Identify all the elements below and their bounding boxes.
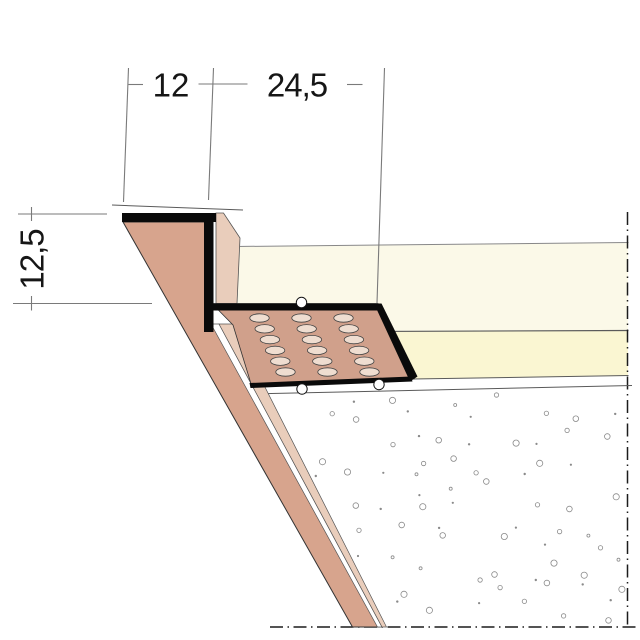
stipple-dot	[319, 459, 325, 465]
stipple-dot	[401, 591, 407, 597]
stipple-dot	[573, 416, 579, 422]
profile-top-bar	[122, 213, 216, 222]
stipple-dot	[420, 504, 426, 510]
perforation-hole	[271, 357, 290, 365]
dimension-label-top-flange: 12	[153, 67, 190, 104]
stipple-dot	[524, 473, 526, 475]
stipple-dot	[484, 479, 490, 485]
stipple-dot	[544, 580, 550, 586]
stipple-dot	[353, 417, 359, 423]
stipple-dot	[501, 533, 507, 539]
stipple-dot	[382, 472, 384, 474]
stipple-dot	[454, 404, 457, 407]
stipple-dot	[587, 534, 590, 537]
stipple-dot	[419, 567, 422, 570]
stipple-dot	[418, 435, 420, 437]
stipple-dot	[407, 410, 409, 412]
stipple-dot	[581, 572, 587, 578]
perforation-hole	[265, 346, 284, 354]
stipple-dot	[330, 412, 334, 416]
perforation-hole	[349, 346, 368, 354]
perforation-hole	[255, 325, 274, 333]
stipple-dot	[315, 475, 317, 477]
stipple-dot	[498, 585, 502, 589]
stipple-dot	[551, 560, 557, 566]
stipple-dot	[565, 428, 569, 432]
stipple-dot	[606, 618, 612, 624]
profile-cross-section-drawing: 12 24,5 12,5	[0, 0, 640, 640]
stipple-dot	[353, 401, 355, 403]
stipple-dot	[470, 416, 472, 418]
stipple-dot	[478, 578, 482, 582]
perforation-hole	[260, 335, 279, 343]
perforation-hole	[355, 357, 374, 365]
stipple-dot	[513, 440, 519, 446]
stipple-dot	[617, 558, 620, 561]
stipple-dot	[391, 442, 395, 446]
stipple-dot	[582, 583, 584, 585]
stipple-dot	[426, 607, 432, 613]
stipple-dot	[537, 460, 543, 466]
stipple-dot	[449, 487, 452, 490]
perforation-hole	[307, 346, 326, 354]
stipple-dot	[436, 437, 442, 443]
stipple-dot	[494, 393, 498, 397]
stipple-dot	[522, 599, 526, 603]
stipple-dot	[451, 456, 457, 462]
notch-front-edge	[296, 297, 306, 307]
stipple-dot	[605, 434, 611, 440]
dimension-label-perforated-flange: 24,5	[267, 67, 327, 104]
flange-front-edge	[212, 304, 379, 311]
stipple-dot	[619, 586, 625, 592]
stipple-dot	[391, 556, 394, 559]
notch-bottom-right	[374, 379, 384, 389]
stipple-dot	[468, 443, 470, 445]
stipple-dot	[515, 527, 517, 529]
stipple-dot	[415, 473, 418, 476]
profile-leg	[204, 213, 214, 332]
stipple-dot	[357, 528, 361, 532]
stipple-dot	[440, 533, 446, 539]
stipple-dot	[389, 397, 395, 403]
stipple-dot	[567, 506, 573, 512]
stipple-dot	[357, 555, 359, 557]
perforation-hole	[313, 357, 332, 365]
stipple-dot	[396, 600, 398, 602]
stipple-dot	[610, 599, 612, 601]
stipple-dot	[452, 502, 454, 504]
stipple-dot	[557, 529, 561, 533]
perforation-hole	[292, 314, 311, 322]
stipple-dot	[614, 413, 616, 415]
stipple-dot	[544, 411, 548, 415]
stipple-dot	[561, 614, 565, 618]
stipple-dot	[535, 503, 539, 507]
stipple-dot	[438, 527, 440, 529]
perforation-hole	[334, 314, 353, 322]
stipple-dot	[478, 602, 480, 604]
stipple-dot	[544, 544, 546, 546]
stipple-dot	[492, 572, 498, 578]
stipple-dot	[613, 494, 619, 500]
perforation-hole	[297, 325, 316, 333]
notch-bottom-left	[297, 384, 307, 394]
stipple-dot	[418, 494, 420, 496]
stipple-dot	[535, 443, 537, 445]
dimension-label-leg-height: 12,5	[14, 229, 51, 289]
perforation-hole	[302, 335, 321, 343]
stipple-dot	[598, 546, 602, 550]
stipple-dot	[570, 464, 572, 466]
stipple-dot	[535, 579, 537, 581]
stipple-dot	[380, 508, 382, 510]
stipple-dot	[474, 471, 478, 475]
perforation-hole	[339, 325, 358, 333]
stipple-dot	[399, 522, 405, 528]
perforation-hole	[360, 368, 379, 376]
drawing-canvas: 12 24,5 12,5	[0, 0, 640, 640]
perforation-hole	[318, 368, 337, 376]
perforation-hole	[276, 368, 295, 376]
perforation-hole	[250, 314, 269, 322]
perforation-hole	[344, 335, 363, 343]
stipple-dot	[353, 503, 359, 509]
stipple-dot	[421, 461, 425, 465]
stipple-dot	[344, 469, 350, 475]
